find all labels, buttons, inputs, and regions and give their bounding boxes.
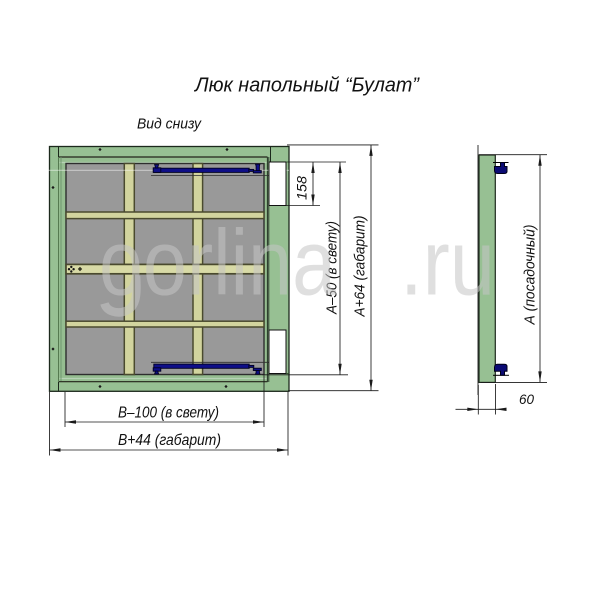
svg-text:Люк напольный “Булат”: Люк напольный “Булат” [193, 73, 420, 96]
svg-text:В+44 (габарит): В+44 (габарит) [118, 432, 221, 449]
svg-text:.ru: .ru [400, 211, 495, 315]
svg-text:А (посадочный): А (посадочный) [522, 225, 539, 326]
svg-text:60: 60 [519, 391, 534, 407]
svg-text:Вид снизу: Вид снизу [137, 117, 202, 133]
svg-text:А+64 (габарит): А+64 (габарит) [351, 215, 368, 317]
svg-text:В–100 (в свету): В–100 (в свету) [118, 405, 219, 422]
svg-text:158: 158 [294, 176, 310, 200]
